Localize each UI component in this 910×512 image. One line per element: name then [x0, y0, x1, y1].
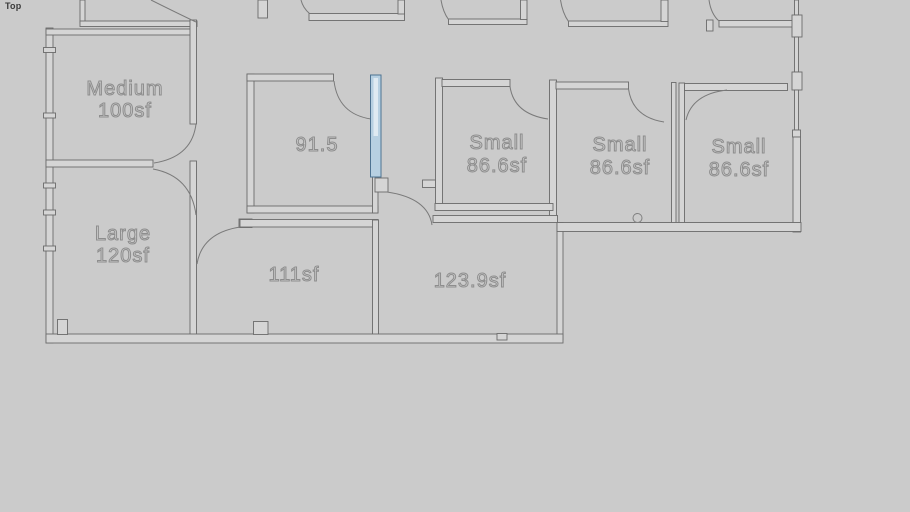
- floor-plan[interactable]: Medium 100sf Large 120sf 91.5 111sf 123.…: [0, 0, 910, 512]
- room-label-91-5[interactable]: 91.5: [296, 134, 339, 156]
- room-label-small1-name[interactable]: Small: [469, 132, 524, 154]
- room-label-small2-area[interactable]: 86.6sf: [590, 157, 650, 179]
- room-label-medium-area[interactable]: 100sf: [98, 100, 152, 122]
- room-label-small3-area[interactable]: 86.6sf: [709, 159, 769, 181]
- walls-layer: [44, 0, 803, 343]
- sketchup-viewport[interactable]: Medium 100sf Large 120sf 91.5 111sf 123.…: [0, 0, 910, 512]
- room-label-small3-name[interactable]: Small: [711, 136, 766, 158]
- room-label-small2-name[interactable]: Small: [592, 134, 647, 156]
- room-label-small1-area[interactable]: 86.6sf: [467, 155, 527, 177]
- room-label-large-area[interactable]: 120sf: [96, 245, 150, 267]
- door-knob-circle: [633, 214, 642, 223]
- room-label-123-9sf[interactable]: 123.9sf: [434, 270, 507, 292]
- room-label-medium-name[interactable]: Medium: [86, 78, 163, 100]
- selected-wall[interactable]: [371, 75, 382, 177]
- view-label: Top: [5, 1, 21, 11]
- room-label-111sf[interactable]: 111sf: [269, 264, 320, 286]
- room-label-large-name[interactable]: Large: [95, 223, 151, 245]
